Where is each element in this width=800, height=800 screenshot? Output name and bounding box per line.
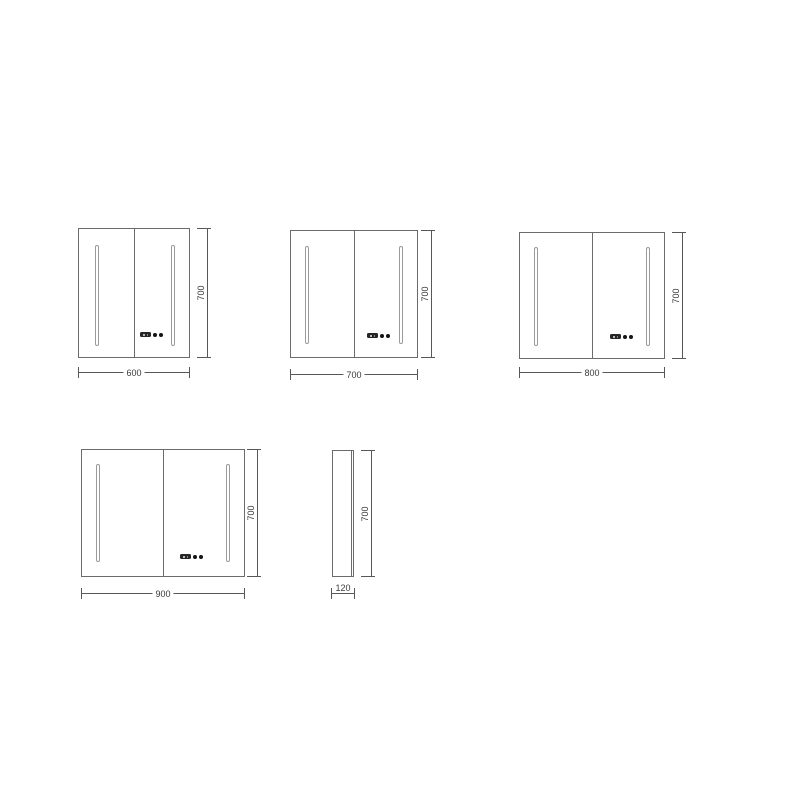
width-dimension-label: 700	[343, 370, 364, 380]
height-dimension: 700	[257, 449, 258, 577]
led-strip-left	[96, 464, 100, 562]
touch-control	[140, 332, 163, 337]
touch-dot-icon	[380, 334, 384, 338]
front-view-900: 900 700	[81, 449, 245, 577]
width-dimension-label: 800	[581, 368, 602, 378]
height-dimension-label: 700	[246, 503, 256, 522]
width-dimension-label: 600	[123, 368, 144, 378]
door-divider	[354, 230, 355, 358]
touch-switch-icon	[180, 554, 191, 559]
mirror-door-edge-line	[351, 450, 352, 577]
touch-dot-icon	[153, 333, 157, 337]
led-strip-left	[95, 245, 99, 346]
touch-dot-icon	[629, 335, 633, 339]
touch-control	[367, 333, 390, 338]
touch-switch-icon	[367, 333, 378, 338]
touch-dot-icon	[386, 334, 390, 338]
led-strip-right	[171, 245, 175, 346]
height-dimension-label: 700	[196, 283, 206, 302]
led-strip-right	[226, 464, 230, 562]
width-dimension: 700	[290, 374, 418, 375]
door-divider	[163, 449, 164, 577]
touch-dot-icon	[193, 555, 197, 559]
front-view-800: 800 700	[519, 232, 665, 359]
height-dimension-label: 700	[420, 284, 430, 303]
side-view-120: 120 700	[332, 450, 354, 577]
height-dimension-label: 700	[671, 286, 681, 305]
touch-control	[610, 334, 633, 339]
led-strip-left	[305, 246, 309, 344]
depth-dimension-label: 120	[334, 583, 351, 593]
width-dimension: 800	[519, 372, 665, 373]
width-dimension: 900	[81, 593, 245, 594]
touch-control	[180, 554, 203, 559]
height-dimension: 700	[371, 450, 372, 577]
touch-dot-icon	[159, 333, 163, 337]
touch-dot-icon	[199, 555, 203, 559]
front-view-700: 700 700	[290, 230, 418, 358]
height-dimension: 700	[682, 232, 683, 359]
led-strip-right	[646, 247, 650, 346]
depth-dimension: 120	[331, 593, 355, 594]
height-dimension: 700	[207, 228, 208, 358]
touch-dot-icon	[623, 335, 627, 339]
led-strip-right	[399, 246, 403, 344]
door-divider	[134, 228, 135, 358]
front-view-600: 600 700	[78, 228, 190, 358]
width-dimension-label: 900	[152, 589, 173, 599]
touch-switch-icon	[140, 332, 151, 337]
width-dimension: 600	[78, 372, 190, 373]
touch-switch-icon	[610, 334, 621, 339]
height-dimension-label: 700	[360, 504, 370, 523]
door-divider	[592, 232, 593, 359]
led-strip-left	[534, 247, 538, 346]
drawing-sheet: 600 700 700 700	[0, 0, 800, 800]
height-dimension: 700	[431, 230, 432, 358]
